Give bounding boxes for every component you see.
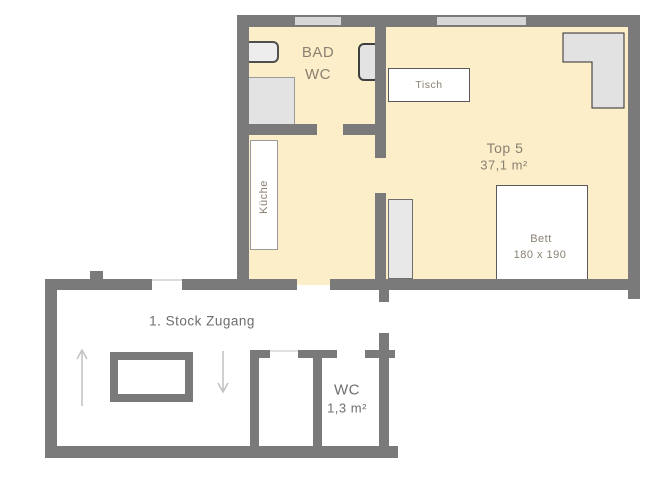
wall-horizontal-b (182, 279, 297, 290)
wall-landing-left (45, 279, 57, 458)
unit-name-label: Top 5 (487, 140, 524, 156)
wall-horizontal-a (45, 279, 152, 290)
floor-plan: BAD WC Küche Tisch Top 5 37,1 m² Bett 18… (0, 0, 669, 500)
wc-label: WC (334, 382, 360, 399)
bed-label: Bett (530, 233, 552, 245)
door-opening (152, 279, 182, 281)
table-label: Tisch (415, 79, 442, 91)
kitchen-label: Küche (258, 180, 270, 214)
wall-separator-lower (375, 193, 386, 290)
bathroom-label-line2: WC (302, 64, 334, 86)
wall-apartment-left (237, 15, 249, 290)
wall-bath-bottom-left (237, 124, 317, 135)
up-arrow-icon (77, 350, 87, 406)
wall-landing-bottom (45, 446, 398, 458)
wardrobe (388, 199, 413, 279)
door-opening (270, 350, 298, 352)
unit-area-label: 37,1 m² (480, 158, 528, 173)
window (437, 17, 526, 25)
sink (244, 41, 279, 63)
down-arrow-icon (218, 351, 228, 392)
wall-wc-right-upper (379, 290, 389, 302)
wall-pier (90, 271, 103, 279)
bathroom-label-line1: BAD (302, 42, 334, 64)
landing-label: 1. Stock Zugang (149, 314, 255, 329)
wall-separator-upper (375, 15, 386, 158)
bathroom-label: BAD WC (302, 42, 334, 86)
stairwell (110, 352, 193, 402)
bed-size-label: 180 x 190 (514, 249, 567, 261)
wall-wc-cross-stub (365, 350, 395, 358)
wc-area-label: 1,3 m² (327, 401, 367, 416)
window (295, 17, 341, 25)
wall-room-left (250, 350, 259, 446)
wall-apartment-right (628, 15, 640, 299)
shower (248, 77, 295, 126)
wall-room-separator (313, 350, 322, 446)
